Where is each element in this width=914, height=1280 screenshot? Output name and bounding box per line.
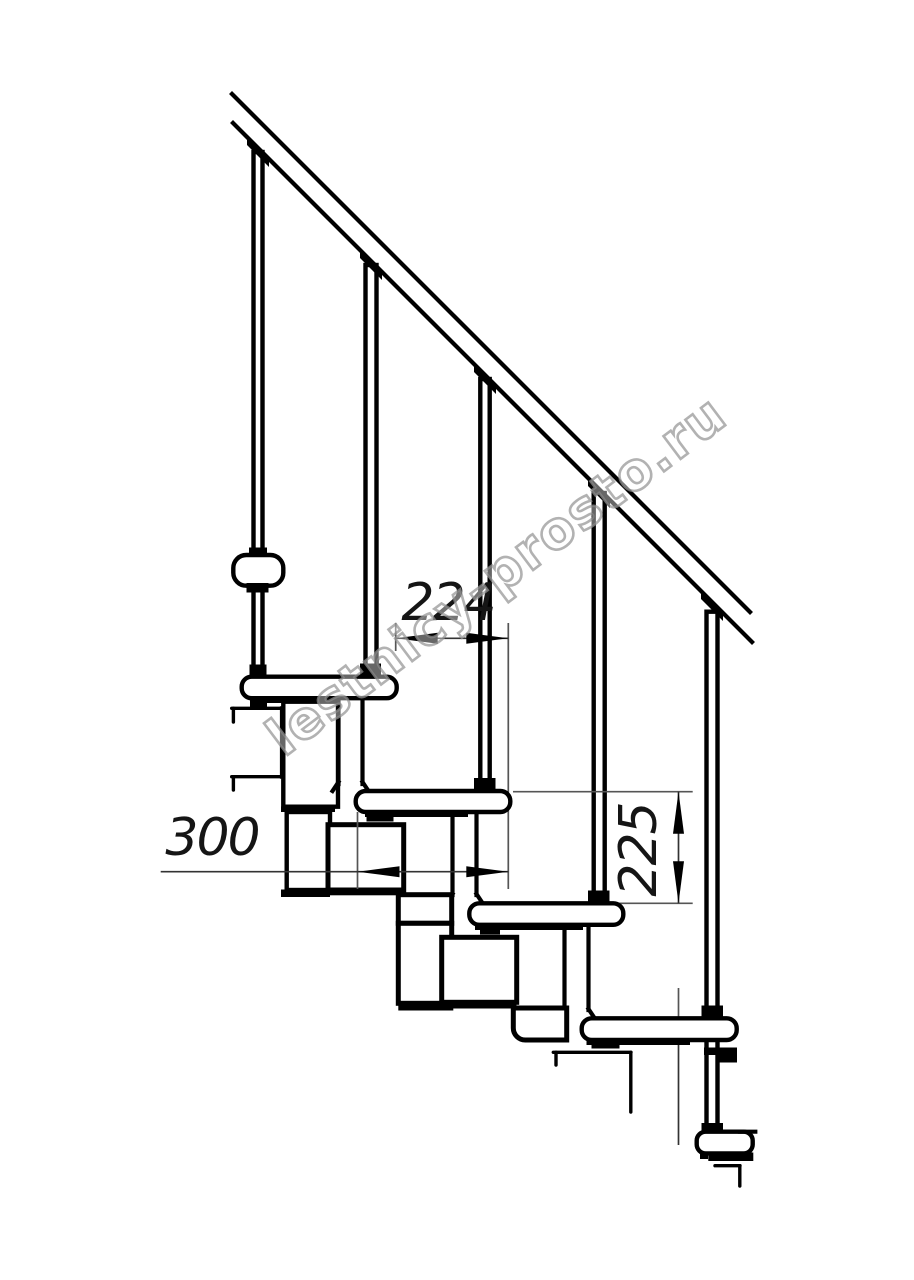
tread-4-tab: [592, 1040, 620, 1049]
foot-tab-2: [708, 1153, 753, 1162]
arrow-225-up: [673, 792, 684, 834]
module-box-lower: [287, 812, 330, 890]
module-box-tread3-flange: [445, 1002, 517, 1009]
module-box-upper: [283, 702, 338, 807]
module-stack3: [513, 1008, 566, 1040]
collar-baluster2-tread1: [360, 664, 381, 678]
collar-below-end-tread: [247, 583, 269, 593]
collar-baluster3-tread2: [474, 778, 496, 791]
landing-break-lines: [232, 708, 284, 790]
arrow-300-right: [466, 866, 508, 877]
floor-foot: [697, 1132, 756, 1186]
arrow-224-left: [396, 633, 438, 644]
upper-flight-tread-end-view: [233, 548, 283, 593]
module-stack2-upper: [398, 895, 451, 924]
tread-2: [356, 791, 511, 812]
arrow-225-down: [673, 861, 684, 903]
tread-1: [242, 677, 397, 699]
dim-label-224: 224: [401, 573, 494, 633]
module-box-tread3: [442, 937, 517, 1002]
module-box-tread2-flange: [330, 888, 402, 896]
tread-4: [582, 1018, 737, 1040]
tread-4-right-bracket-step: [719, 1055, 737, 1063]
dim-label-300: 300: [165, 808, 258, 868]
collar-baluster1-tread1: [250, 665, 267, 678]
dim-label-225: 225: [609, 803, 669, 896]
staircase-drawing-canvas: 224 300 225: [0, 0, 914, 1280]
module-boxes: [328, 825, 631, 1112]
foot-tab-1: [700, 1153, 708, 1160]
end-tread: [233, 555, 283, 586]
tread-1-tab: [250, 698, 267, 708]
baluster-2: [366, 265, 377, 677]
foot-plate: [697, 1132, 753, 1154]
tread-4-right-bracket: [704, 1048, 737, 1056]
collar-baluster4-tread3: [588, 891, 610, 904]
handrail: [232, 94, 752, 642]
tread-2-tab: [367, 812, 394, 822]
baluster-4: [594, 493, 605, 903]
staircase-drawing: 224 300 225 lestnicy-prosto.ru: [0, 0, 914, 1280]
module-box-tread2: [328, 825, 404, 890]
module-bottom-flange: [281, 890, 330, 898]
tread-3: [469, 903, 623, 925]
collar-baluster5-tread4: [702, 1006, 724, 1019]
tread-3-tab: [480, 925, 500, 935]
baluster-1: [254, 152, 263, 677]
